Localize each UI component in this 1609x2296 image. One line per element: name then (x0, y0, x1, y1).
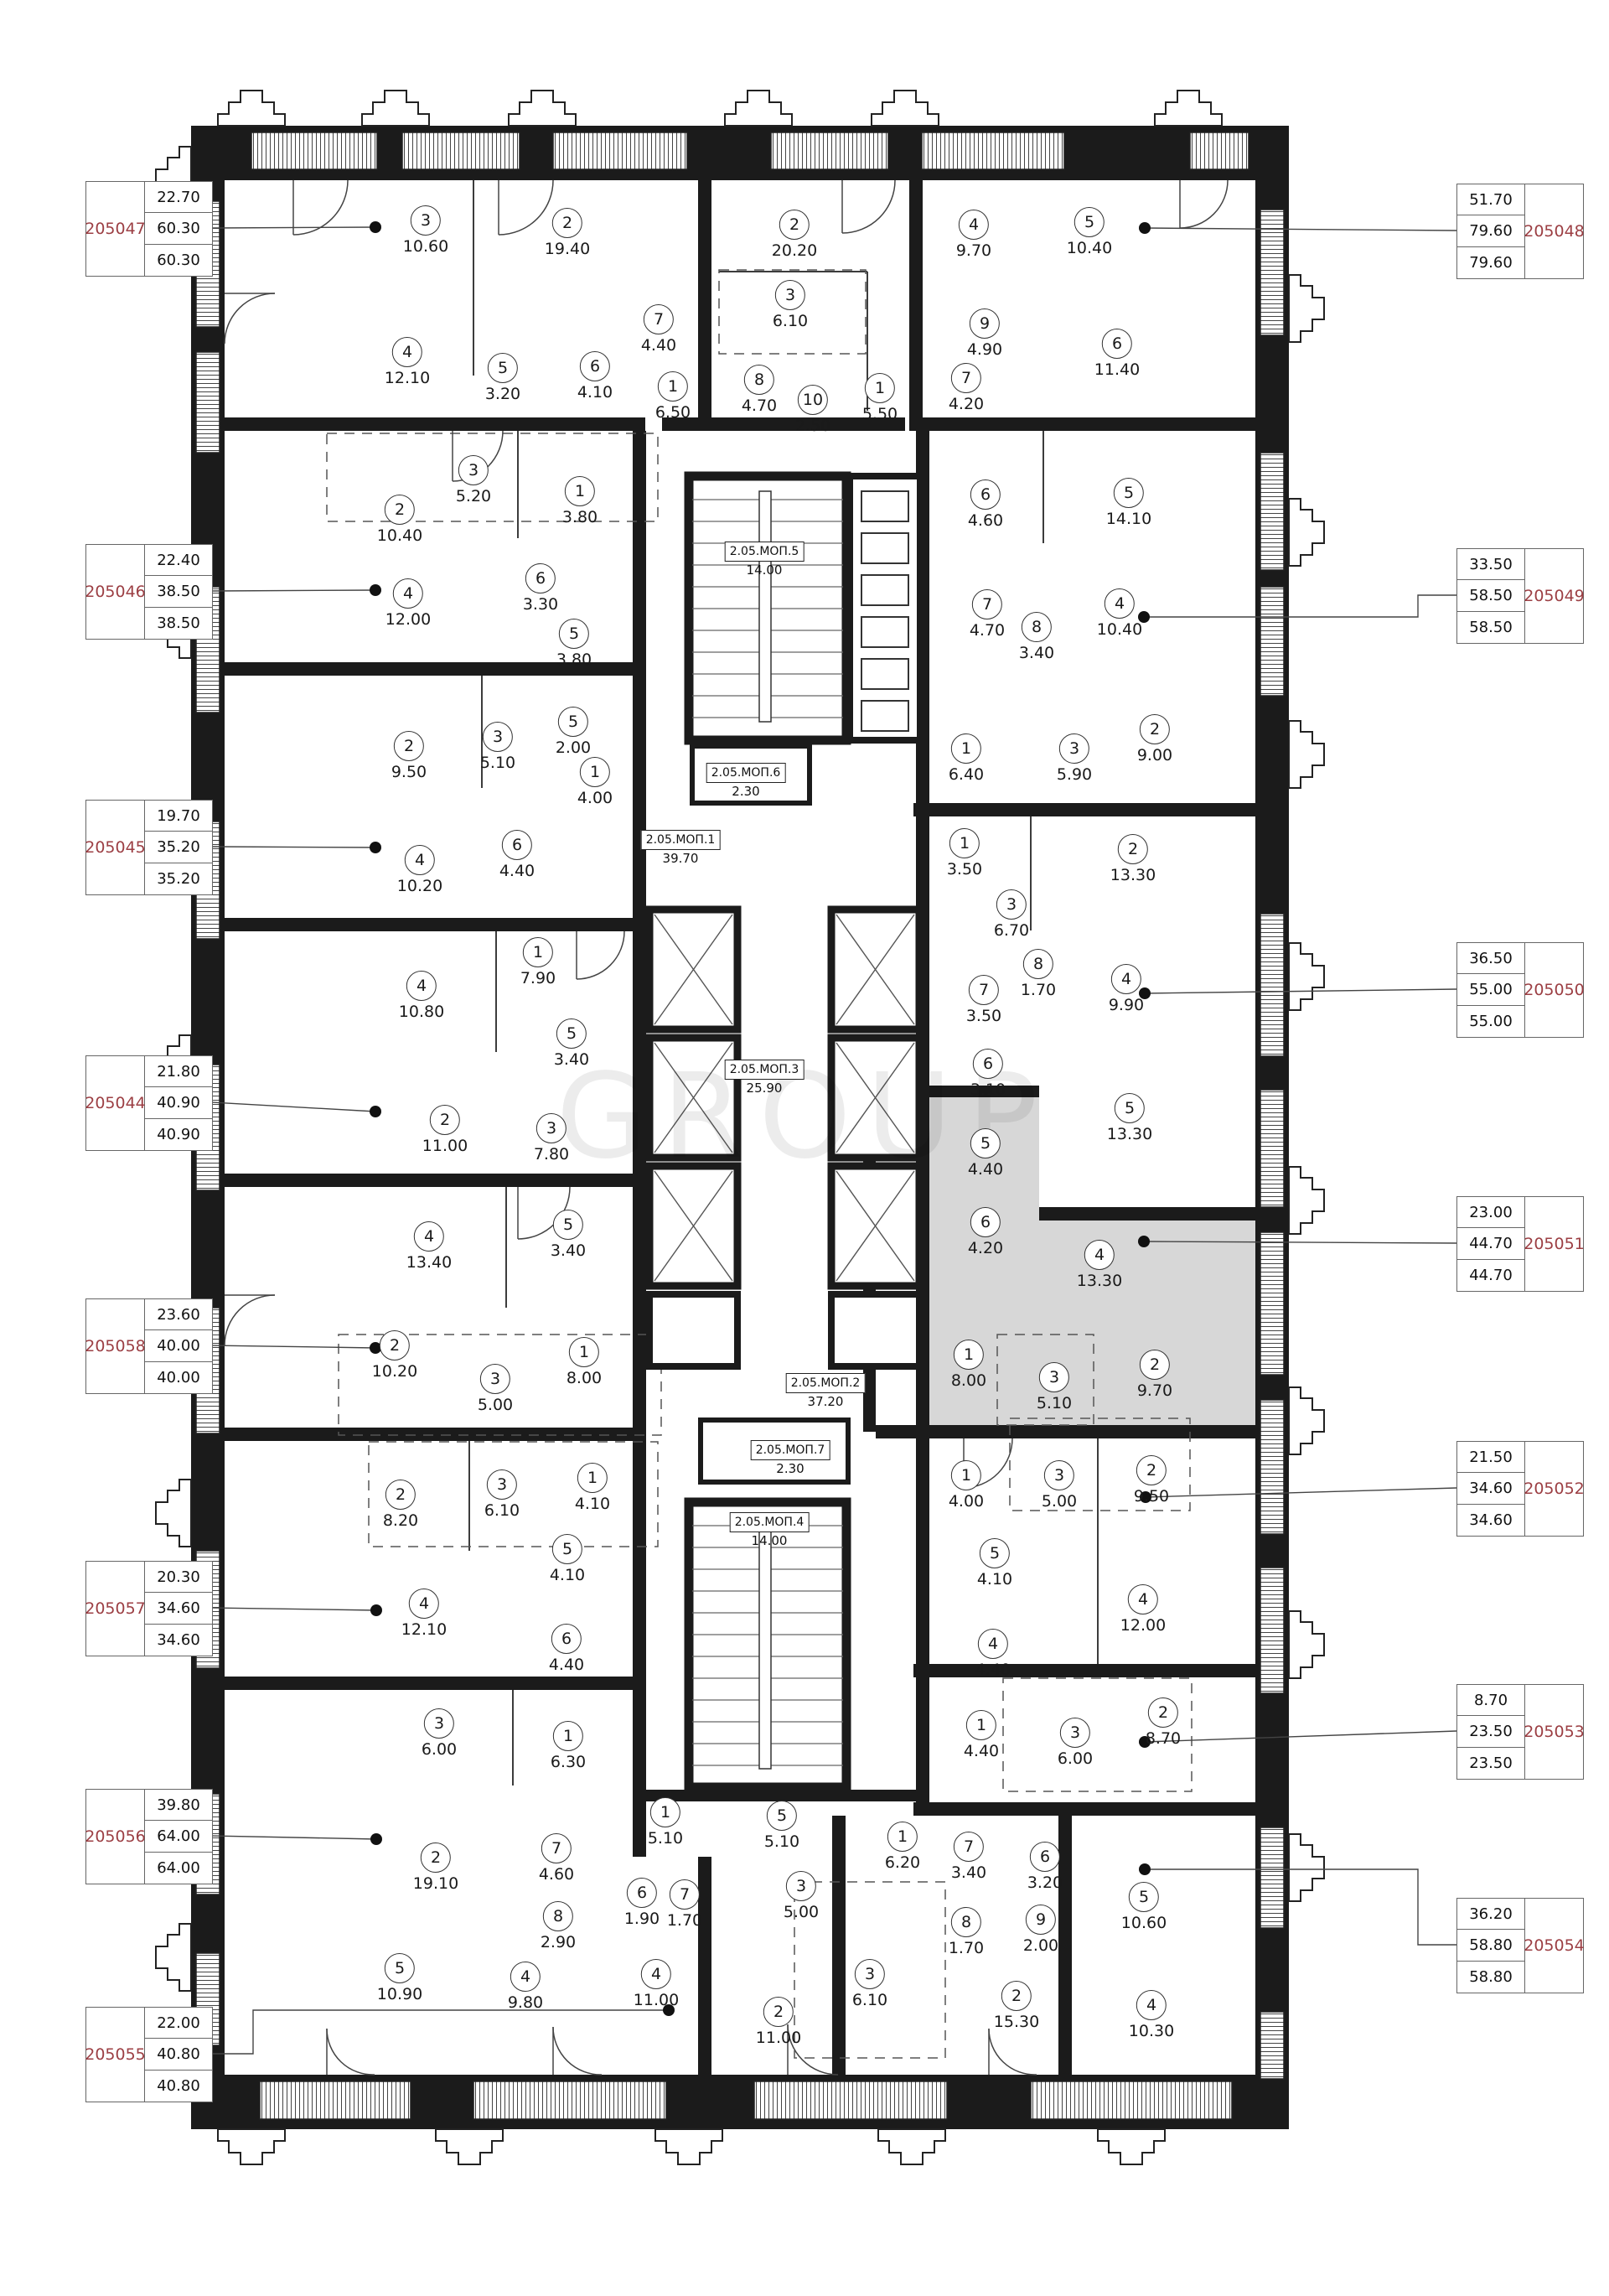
room-area-value: 15.30 (994, 2013, 1039, 2031)
room-number: 5 (980, 1134, 991, 1153)
common-area-value: 14.00 (725, 562, 804, 578)
room-area-value: 14.10 (1106, 510, 1151, 528)
room-area-value: 2.50 (795, 417, 830, 435)
room-number: 5 (562, 1540, 572, 1558)
room-marker: 64.60 (968, 479, 1003, 530)
room-area-value: 1.70 (949, 1939, 984, 1957)
apartment-area-value: 40.90 (145, 1119, 212, 1150)
room-number: 4 (1115, 594, 1125, 613)
room-area-value: 10.20 (372, 1362, 417, 1381)
room-marker: 53.20 (485, 353, 520, 403)
room-area-value: 4.70 (742, 396, 777, 415)
room-marker: 84.70 (742, 365, 777, 415)
room-number: 7 (654, 310, 664, 329)
room-number: 4 (1146, 1996, 1156, 2014)
room-number-circle: 1 (887, 1822, 918, 1852)
room-number: 4 (969, 215, 979, 234)
room-marker: 510.90 (377, 1953, 422, 2003)
room-number-circle: 7 (969, 975, 999, 1005)
apartment-area-value: 23.50 (1457, 1748, 1524, 1779)
apartment-area-value: 38.50 (145, 576, 212, 607)
room-marker: 611.40 (1094, 329, 1140, 379)
room-area-value: 2.90 (541, 1933, 576, 1951)
room-marker: 13.80 (562, 476, 598, 526)
room-number-circle: 5 (980, 1538, 1010, 1568)
room-number: 2 (404, 737, 414, 755)
room-area-value: 4.40 (975, 1661, 1011, 1679)
room-area-value: 11.00 (634, 1991, 679, 2009)
room-area-value: 19.40 (545, 240, 590, 258)
apartment-label-205045[interactable]: 20504519.7035.2035.20 (85, 800, 213, 895)
room-number: 1 (590, 763, 600, 781)
room-area-value: 1.90 (624, 1910, 660, 1928)
room-area-value: 3.50 (966, 1007, 1001, 1025)
apartment-area-value: 58.50 (1457, 580, 1524, 611)
apartment-id: 205055 (86, 2008, 145, 2102)
room-number: 4 (1138, 1590, 1148, 1609)
common-area-id: 2.05.МОП.7 (751, 1440, 830, 1460)
apartment-id: 205057 (86, 1562, 145, 1656)
room-area-value: 5.10 (764, 1832, 799, 1851)
room-marker: 36.00 (422, 1708, 457, 1759)
room-area-value: 4.60 (539, 1865, 574, 1884)
room-marker: 410.30 (1129, 1990, 1174, 2040)
room-number-circle: 3 (996, 889, 1027, 920)
room-number-circle: 5 (1129, 1882, 1159, 1912)
room-number: 5 (1139, 1888, 1149, 1906)
room-marker: 411.00 (634, 1959, 679, 2009)
room-marker: 16.30 (551, 1721, 586, 1771)
room-marker: 81.70 (949, 1907, 984, 1957)
room-number: 6 (637, 1884, 647, 1902)
apartment-area-value: 22.00 (145, 2008, 212, 2039)
room-number: 5 (1084, 213, 1094, 231)
common-area-id: 2.05.МОП.6 (706, 763, 786, 783)
room-marker: 36.10 (484, 1469, 520, 1520)
apartment-areas: 19.7035.2035.20 (145, 801, 212, 894)
room-number-circle: 5 (767, 1801, 797, 1831)
room-number-circle: 8 (543, 1901, 573, 1931)
room-area-value: 6.10 (773, 312, 808, 330)
room-area-value: 4.40 (641, 336, 676, 355)
room-number-circle: 7 (644, 304, 674, 334)
apartment-id: 205049 (1524, 549, 1583, 643)
room-number: 7 (982, 595, 992, 614)
room-number-circle: 3 (1059, 733, 1089, 764)
room-number-circle: 1 (966, 1710, 996, 1740)
room-number: 4 (424, 1227, 434, 1246)
room-number-circle: 4 (392, 337, 422, 367)
room-area-value: 6.70 (994, 921, 1029, 940)
room-area-value: 9.00 (1137, 746, 1172, 764)
room-marker: 14.40 (964, 1710, 999, 1760)
room-area-value: 4.40 (964, 1742, 999, 1760)
room-marker: 18.00 (951, 1340, 986, 1390)
room-number: 5 (498, 359, 508, 377)
room-area-value: 6.40 (949, 765, 984, 784)
room-marker: 35.00 (784, 1871, 819, 1921)
room-marker: 211.00 (756, 1997, 801, 2047)
apartment-id: 205053 (1524, 1685, 1583, 1779)
common-area-label: 2.05.МОП.72.30 (751, 1440, 830, 1476)
room-number: 3 (493, 728, 503, 746)
apartment-areas: 21.5034.6034.60 (1457, 1442, 1524, 1536)
room-number: 2 (562, 214, 572, 232)
room-number-circle: 5 (553, 1210, 583, 1240)
room-number-circle: 4 (1105, 588, 1135, 619)
room-number-circle: 4 (1084, 1240, 1115, 1270)
room-area-value: 6.10 (484, 1501, 520, 1520)
room-area-value: 4.40 (968, 1160, 1003, 1179)
room-number-circle: 5 (385, 1953, 415, 1983)
room-area-value: 8.00 (567, 1369, 602, 1387)
apartment-areas: 36.2058.8058.80 (1457, 1899, 1524, 1993)
room-marker: 63.20 (1027, 1842, 1063, 1892)
apartment-area-value: 34.60 (1457, 1473, 1524, 1504)
apartment-id: 205046 (86, 545, 145, 639)
room-number: 4 (988, 1635, 998, 1653)
room-number: 7 (979, 981, 989, 999)
room-marker: 510.60 (1121, 1882, 1167, 1932)
room-number: 2 (1146, 1461, 1156, 1480)
room-marker: 63.10 (970, 1049, 1006, 1099)
common-area-label: 2.05.МОП.62.30 (706, 763, 786, 799)
room-number-circle: 2 (430, 1105, 460, 1135)
room-number-circle: 1 (949, 828, 980, 858)
room-marker: 412.00 (1120, 1584, 1166, 1635)
room-number: 3 (1070, 1723, 1080, 1742)
room-number: 4 (651, 1965, 661, 1983)
room-number-circle: 3 (487, 1469, 517, 1500)
room-number: 7 (964, 1837, 974, 1856)
room-marker: 29.50 (1134, 1455, 1169, 1506)
apartment-label-205046[interactable]: 20504622.4038.5038.50 (85, 544, 213, 640)
room-marker: 74.40 (641, 304, 676, 355)
room-area-value: 20.20 (772, 241, 817, 260)
room-marker: 514.10 (1106, 478, 1151, 528)
common-area-label: 2.05.МОП.237.20 (786, 1373, 866, 1409)
room-number: 6 (980, 1213, 991, 1231)
room-number: 2 (431, 1848, 441, 1867)
room-number: 2 (396, 1485, 406, 1504)
room-area-value: 3.80 (556, 650, 592, 669)
room-area-value: 3.10 (970, 1081, 1006, 1099)
room-area-value: 11.00 (422, 1137, 468, 1155)
apartment-label-205054[interactable]: 36.2058.8058.80205054 (1456, 1898, 1584, 1993)
room-number-circle: 3 (483, 722, 513, 752)
room-number: 6 (1112, 334, 1122, 353)
apartment-area-value: 19.70 (145, 801, 212, 832)
room-area-value: 13.40 (406, 1253, 452, 1272)
room-number: 2 (1150, 1355, 1160, 1374)
room-area-value: 12.10 (401, 1620, 447, 1639)
room-marker: 53.40 (551, 1210, 586, 1260)
apartment-area-value: 58.80 (1457, 1962, 1524, 1993)
apartment-area-value: 34.60 (145, 1625, 212, 1656)
room-area-value: 4.10 (575, 1495, 610, 1513)
apartment-areas: 20.3034.6034.60 (145, 1562, 212, 1656)
room-number-circle: 2 (380, 1330, 410, 1360)
room-area-value: 4.40 (549, 1656, 584, 1674)
apartment-areas: 23.0044.7044.70 (1457, 1197, 1524, 1291)
room-number: 2 (789, 215, 799, 234)
room-number-circle: 4 (409, 1589, 439, 1619)
room-area-value: 3.20 (485, 385, 520, 403)
common-area-value: 14.00 (730, 1533, 810, 1548)
room-area-value: 10.40 (1067, 239, 1112, 257)
room-marker: 52.00 (556, 707, 591, 757)
apartment-label-205051[interactable]: 23.0044.7044.70205051 (1456, 1196, 1584, 1292)
room-marker: 35.90 (1057, 733, 1092, 784)
room-number-circle: 6 (1030, 1842, 1060, 1872)
room-area-value: 8.20 (383, 1511, 418, 1530)
room-number: 5 (395, 1959, 405, 1977)
apartment-id: 205056 (86, 1790, 145, 1884)
room-marker: 64.40 (499, 830, 535, 880)
apartment-areas: 39.8064.0064.00 (145, 1790, 212, 1884)
room-number: 1 (964, 1345, 974, 1364)
room-number-circle: 5 (552, 1534, 582, 1564)
room-area-value: 4.10 (977, 1570, 1012, 1589)
apartment-label-205047[interactable]: 20504722.7060.3060.30 (85, 181, 213, 277)
room-number: 3 (434, 1714, 444, 1733)
common-area-id: 2.05.МОП.1 (641, 830, 721, 850)
room-number-circle: 4 (510, 1962, 541, 1992)
room-marker: 53.80 (556, 619, 592, 669)
room-area-value: 5.10 (480, 754, 515, 772)
apartment-area-value: 23.50 (1457, 1716, 1524, 1747)
room-number: 3 (497, 1475, 507, 1494)
room-marker: 83.40 (1019, 612, 1054, 662)
room-number: 8 (553, 1907, 563, 1925)
room-area-value: 5.00 (478, 1396, 513, 1414)
room-area-value: 9.50 (391, 763, 427, 781)
room-number: 3 (490, 1370, 500, 1388)
room-marker: 64.10 (577, 351, 613, 402)
room-number-circle: 2 (394, 731, 424, 761)
room-number-circle: 3 (786, 1871, 816, 1901)
room-number-circle: 8 (744, 365, 774, 395)
room-area-value: 4.70 (970, 621, 1005, 640)
room-number-circle: 9 (970, 308, 1000, 339)
apartment-areas: 23.6040.0040.00 (145, 1299, 212, 1393)
apartment-area-value: 20.30 (145, 1562, 212, 1593)
room-area-value: 4.00 (577, 789, 613, 807)
room-number-circle: 1 (553, 1721, 583, 1751)
room-number: 4 (416, 977, 427, 995)
room-marker: 64.20 (968, 1207, 1003, 1257)
apartment-area-value: 79.60 (1457, 215, 1524, 246)
room-area-value: 8.70 (1146, 1729, 1181, 1748)
apartment-label-205057[interactable]: 20505720.3034.6034.60 (85, 1561, 213, 1656)
room-number-circle: 7 (972, 589, 1002, 619)
room-number: 2 (390, 1336, 400, 1355)
room-number: 3 (1054, 1466, 1064, 1485)
room-number-circle: 5 (970, 1128, 1001, 1158)
room-number: 6 (512, 836, 522, 854)
room-area-value: 7.80 (534, 1145, 569, 1164)
room-number: 3 (546, 1119, 556, 1138)
room-number-circle: 6 (1102, 329, 1132, 359)
room-marker: 35.20 (456, 455, 491, 505)
room-number: 4 (419, 1594, 429, 1613)
room-area-value: 4.20 (949, 395, 984, 413)
room-number-circle: 3 (1060, 1718, 1090, 1748)
room-number: 3 (785, 286, 795, 304)
room-marker: 14.00 (577, 757, 613, 807)
room-area-value: 3.20 (1027, 1874, 1063, 1892)
apartment-label-205050[interactable]: 36.5055.0055.00205050 (1456, 942, 1584, 1038)
room-marker: 36.10 (773, 280, 808, 330)
room-area-value: 10.80 (399, 1003, 444, 1021)
apartment-label-205052[interactable]: 21.5034.6034.60205052 (1456, 1441, 1584, 1537)
apartment-label-205053[interactable]: 8.7023.5023.50205053 (1456, 1684, 1584, 1780)
room-number: 8 (1033, 955, 1043, 973)
room-marker: 410.20 (397, 845, 442, 895)
room-number-circle: 6 (551, 1624, 582, 1654)
room-number: 6 (561, 1630, 572, 1648)
room-number: 1 (587, 1469, 598, 1487)
room-area-value: 13.30 (1077, 1272, 1122, 1290)
apartment-area-value: 64.00 (145, 1853, 212, 1884)
room-area-value: 2.00 (1023, 1936, 1058, 1955)
room-number: 1 (668, 377, 678, 396)
room-number: 4 (1094, 1246, 1105, 1264)
room-number: 4 (520, 1967, 530, 1986)
common-area-value: 39.70 (641, 851, 721, 866)
apartment-area-value: 34.60 (145, 1593, 212, 1624)
room-area-value: 7.90 (520, 969, 556, 987)
apartment-area-value: 60.30 (145, 213, 212, 244)
room-marker: 213.30 (1110, 834, 1156, 884)
room-area-value: 1.70 (667, 1911, 702, 1930)
room-marker: 36.00 (1058, 1718, 1093, 1768)
room-number-circle: 4 (393, 578, 423, 609)
room-number: 5 (563, 1215, 573, 1234)
apartment-area-value: 40.80 (145, 2071, 212, 2102)
room-number-circle: 6 (627, 1878, 657, 1908)
room-area-value: 3.40 (554, 1050, 589, 1069)
room-area-value: 12.00 (1120, 1616, 1166, 1635)
room-marker: 35.10 (480, 722, 515, 772)
room-number-circle: 5 (556, 1018, 587, 1049)
room-number-circle: 2 (421, 1843, 451, 1873)
room-number: 4 (403, 584, 413, 603)
room-number-circle: 2 (1118, 834, 1148, 864)
room-number: 6 (980, 485, 991, 504)
room-number: 6 (590, 357, 600, 376)
room-number: 6 (535, 569, 546, 588)
room-number-circle: 1 (565, 476, 595, 506)
common-area-label: 2.05.МОП.139.70 (641, 830, 721, 866)
room-number-circle: 4 (1136, 1990, 1167, 2020)
room-marker: 29.50 (391, 731, 427, 781)
room-number: 1 (563, 1727, 573, 1745)
room-marker: 73.40 (951, 1832, 986, 1882)
common-area-value: 2.30 (751, 1461, 830, 1476)
room-marker: 15.50 (862, 373, 898, 423)
room-marker: 413.40 (406, 1221, 452, 1272)
room-number-circle: 2 (779, 210, 810, 240)
apartment-label-205058[interactable]: 20505823.6040.0040.00 (85, 1298, 213, 1394)
room-marker: 410.40 (1097, 588, 1142, 639)
room-number-circle: 1 (954, 1340, 984, 1370)
room-marker: 74.70 (970, 589, 1005, 640)
room-marker: 94.90 (967, 308, 1002, 359)
room-marker: 219.10 (413, 1843, 458, 1893)
apartment-label-205049[interactable]: 33.5058.5058.50205049 (1456, 548, 1584, 644)
room-area-value: 6.00 (422, 1740, 457, 1759)
room-marker: 92.00 (1023, 1905, 1058, 1955)
room-area-value: 3.50 (947, 860, 982, 878)
room-area-value: 9.80 (508, 1993, 543, 2012)
room-number: 3 (796, 1877, 806, 1895)
room-area-value: 10.60 (1121, 1914, 1167, 1932)
room-area-value: 6.20 (885, 1853, 920, 1872)
room-area-value: 10.20 (397, 877, 442, 895)
room-marker: 210.40 (377, 495, 422, 545)
room-marker: 412.10 (401, 1589, 447, 1639)
apartment-label-205048[interactable]: 51.7079.6079.60205048 (1456, 184, 1584, 279)
common-area-value: 2.30 (706, 784, 786, 799)
room-number-circle: 1 (951, 733, 981, 764)
room-number: 1 (976, 1716, 986, 1734)
room-number: 5 (569, 625, 579, 643)
room-area-value: 10.30 (1129, 2022, 1174, 2040)
room-number-circle: 7 (670, 1879, 700, 1910)
room-area-value: 1.70 (1021, 981, 1056, 999)
room-area-value: 5.00 (784, 1903, 819, 1921)
room-marker: 16.40 (949, 733, 984, 784)
room-area-value: 4.60 (968, 511, 1003, 530)
apartment-label-205044[interactable]: 20504421.8040.9040.90 (85, 1055, 213, 1151)
apartment-area-value: 38.50 (145, 608, 212, 639)
room-number: 1 (961, 739, 971, 758)
room-number-circle: 1 (658, 371, 688, 402)
room-number: 2 (440, 1111, 450, 1129)
floorplan-drawing: GROUP (0, 0, 1609, 2296)
room-number-circle: 5 (558, 707, 588, 737)
room-marker: 49.70 (956, 210, 991, 260)
room-marker: 412.10 (385, 337, 430, 387)
apartment-area-value: 35.20 (145, 832, 212, 863)
room-number-circle: 4 (405, 845, 435, 875)
apartment-label-205055[interactable]: 20505522.0040.8040.80 (85, 2007, 213, 2102)
room-number-circle: 8 (1023, 949, 1053, 979)
apartment-label-205056[interactable]: 20505639.8064.0064.00 (85, 1789, 213, 1884)
room-marker: 81.70 (1021, 949, 1056, 999)
room-number-circle: 6 (525, 563, 556, 593)
room-number-circle: 6 (970, 479, 1001, 510)
room-area-value: 4.10 (577, 383, 613, 402)
room-number-circle: 4 (414, 1221, 444, 1252)
room-marker: 35.00 (478, 1364, 513, 1414)
room-number-circle: 6 (970, 1207, 1001, 1237)
apartment-area-value: 58.50 (1457, 612, 1524, 643)
room-area-value: 3.80 (562, 508, 598, 526)
room-number: 3 (1049, 1368, 1059, 1386)
room-marker: 215.30 (994, 1981, 1039, 2031)
room-number-circle: 1 (865, 373, 895, 403)
room-area-value: 13.30 (1107, 1125, 1152, 1143)
room-area-value: 4.20 (968, 1239, 1003, 1257)
room-number: 2 (395, 500, 405, 519)
apartment-area-value: 51.70 (1457, 184, 1524, 215)
apartment-area-value: 21.50 (1457, 1442, 1524, 1473)
common-area-value: 37.20 (786, 1394, 866, 1409)
room-number-circle: 3 (536, 1113, 567, 1143)
apartment-id: 205050 (1524, 943, 1583, 1037)
